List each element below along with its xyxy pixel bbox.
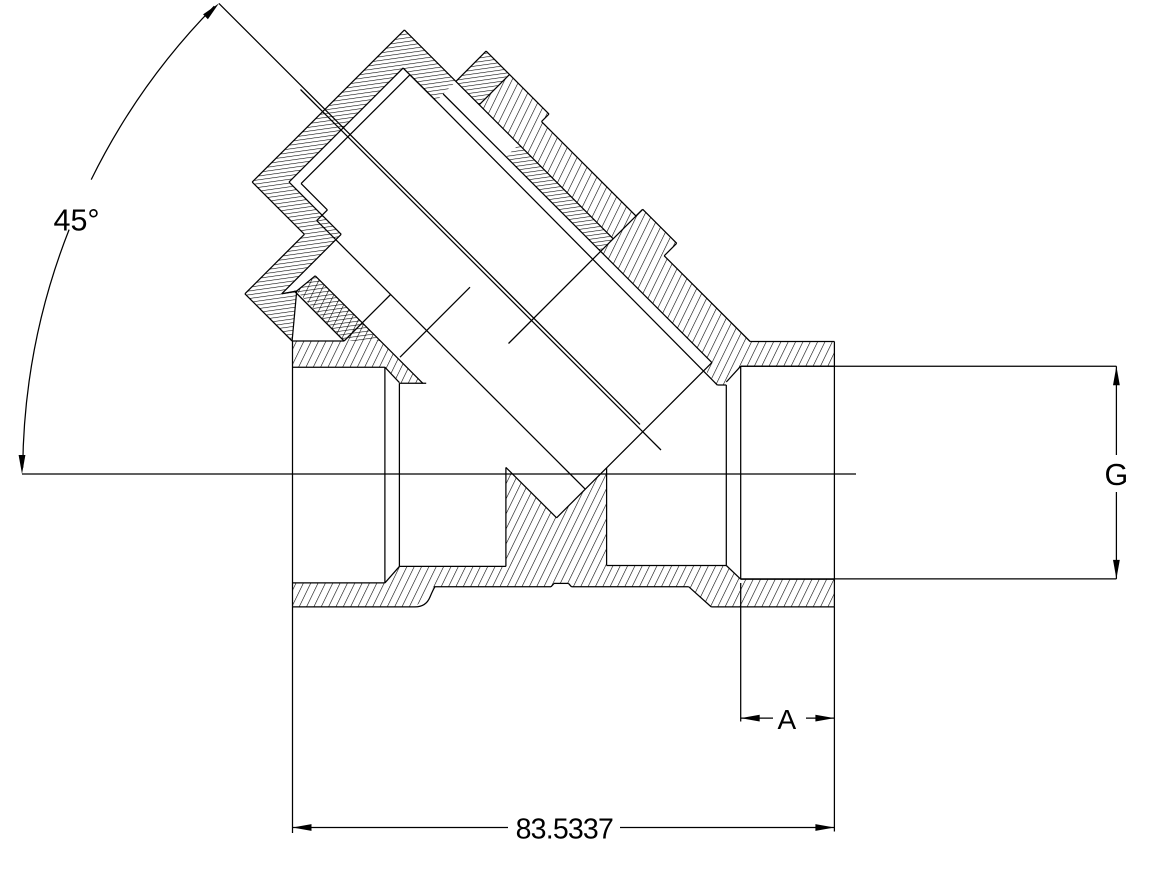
svg-text:45°: 45° xyxy=(54,204,100,238)
svg-text:A: A xyxy=(778,704,797,735)
svg-text:83.5337: 83.5337 xyxy=(516,813,613,845)
svg-text:G: G xyxy=(1105,458,1129,492)
